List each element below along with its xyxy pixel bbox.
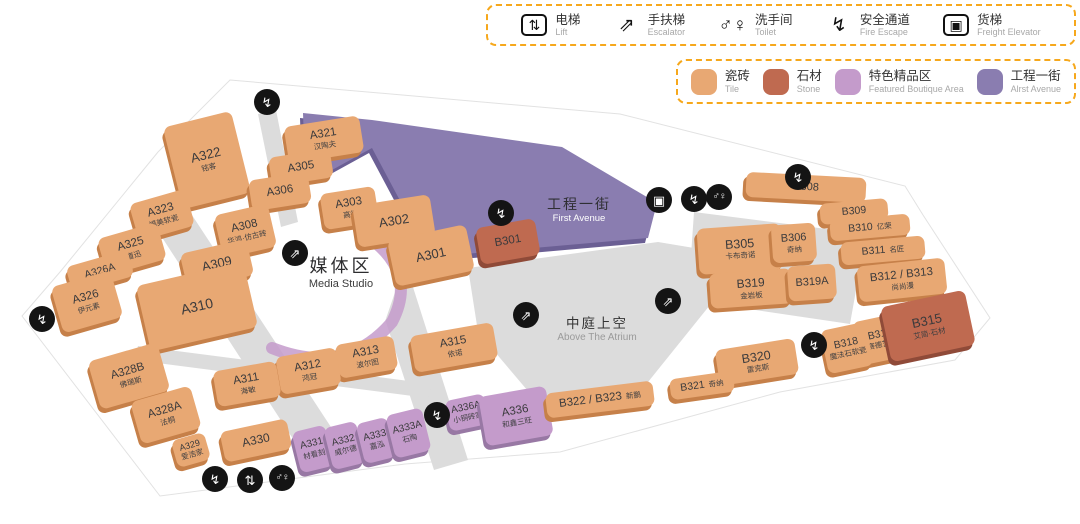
- unit-id-label: B301: [494, 233, 523, 251]
- unit-id-label: B319A: [795, 275, 829, 290]
- media-studio-label: 媒体区Media Studio: [309, 256, 373, 291]
- unit-id-label: B309: [841, 204, 866, 218]
- toilet-icon: ♂♀: [706, 184, 732, 210]
- unit-A312: A312鸿冠: [275, 347, 342, 395]
- floor-map: A322铭客A323福美软瓷A325道迅A326AA326伊元素A321汉陶夫A…: [0, 0, 1080, 524]
- escalator-icon: ⇗: [655, 288, 681, 314]
- area-en-label: Media Studio: [309, 278, 373, 291]
- unit-A313: A313波尔图: [334, 335, 398, 379]
- unit-store-name: 卡布奇诺: [725, 251, 756, 262]
- unit-store-name: 铭客: [201, 162, 218, 174]
- unit-store-name: 奇纳: [708, 379, 724, 390]
- unit-id-label: A310: [179, 295, 214, 318]
- unit-A311: A311海敏: [212, 361, 281, 408]
- unit-B319: B319金岩板: [709, 268, 793, 309]
- unit-B306: B306奇纳: [771, 223, 818, 264]
- area-zh-label: 中庭上空: [557, 316, 636, 332]
- unit-store-name: 威尔德: [334, 445, 358, 459]
- escalator-icon: ⇗: [513, 302, 539, 328]
- fire-escape-icon: ↯: [254, 89, 280, 115]
- unit-id-label: B322 / B323: [558, 390, 622, 411]
- unit-id-label: B310: [848, 221, 873, 235]
- unit-store-name: 石陶: [402, 433, 419, 445]
- mall-floor-map-page: ⇅电梯Lift⇗手扶梯Escalator♂♀洗手间Toilet↯安全通道Fire…: [0, 0, 1080, 524]
- unit-id-label: B321: [680, 379, 706, 394]
- unit-store-name: 新鹏: [626, 391, 642, 401]
- unit-store-name: 雷克斯: [746, 364, 770, 376]
- unit-store-name: 波尔图: [356, 358, 380, 370]
- unit-store-name: 亿荣: [876, 222, 892, 232]
- freight-elevator-icon: ▣: [646, 187, 672, 213]
- unit-store-name: 海敏: [240, 385, 256, 396]
- unit-store-name: 名匠: [889, 245, 905, 255]
- avenue-label: 工程一街First Avenue: [547, 196, 611, 224]
- unit-B321: B321奇纳: [669, 371, 735, 401]
- toilet-icon: ♂♀: [269, 465, 295, 491]
- unit-store-name: 法桐: [160, 416, 177, 428]
- fire-escape-icon: ↯: [29, 306, 55, 332]
- unit-B319A: B319A: [787, 263, 837, 301]
- area-en-label: First Avenue: [547, 213, 611, 224]
- unit-id-label: A306: [266, 183, 295, 200]
- unit-B315: B315艾简·石材: [880, 290, 976, 363]
- fire-escape-icon: ↯: [785, 164, 811, 190]
- unit-id-label: A302: [378, 211, 410, 231]
- unit-A310: A310: [136, 261, 258, 351]
- atrium-label: 中庭上空Above The Atrium: [557, 316, 636, 344]
- unit-id-label: B306: [780, 231, 807, 245]
- unit-id-label: B311: [861, 244, 886, 258]
- area-en-label: Above The Atrium: [557, 332, 636, 344]
- fire-escape-icon: ↯: [681, 186, 707, 212]
- fire-escape-icon: ↯: [488, 200, 514, 226]
- fire-escape-icon: ↯: [801, 332, 827, 358]
- area-zh-label: 媒体区: [309, 256, 373, 278]
- unit-store-name: 嘉泓: [369, 441, 386, 453]
- unit-A330: A330: [220, 418, 293, 462]
- unit-B322-B323: B322 / B323新鹏: [545, 381, 655, 419]
- unit-id-label: A330: [241, 431, 271, 450]
- unit-store-name: 鸿冠: [302, 372, 318, 383]
- unit-B318: B318魔法石软瓷: [820, 322, 874, 375]
- unit-store-name: 依诺: [447, 349, 463, 360]
- unit-store-name: 奇纳: [787, 245, 803, 255]
- unit-B301: B301: [475, 218, 541, 265]
- unit-A336: A336和鑫三旺: [478, 385, 554, 446]
- unit-id-label: B319: [736, 276, 765, 292]
- fire-escape-icon: ↯: [202, 466, 228, 492]
- unit-id-label: A301: [415, 245, 448, 266]
- lift-icon: ⇅: [237, 467, 263, 493]
- unit-store-name: 尚尚漫: [891, 282, 914, 293]
- unit-A329: A329爱浩家: [171, 432, 211, 468]
- unit-A315: A315依诺: [409, 322, 498, 373]
- fire-escape-icon: ↯: [424, 402, 450, 428]
- unit-store-name: 金岩板: [740, 291, 763, 301]
- unit-A326: A326伊元素: [51, 270, 124, 333]
- area-zh-label: 工程一街: [547, 196, 611, 213]
- escalator-icon: ⇗: [282, 240, 308, 266]
